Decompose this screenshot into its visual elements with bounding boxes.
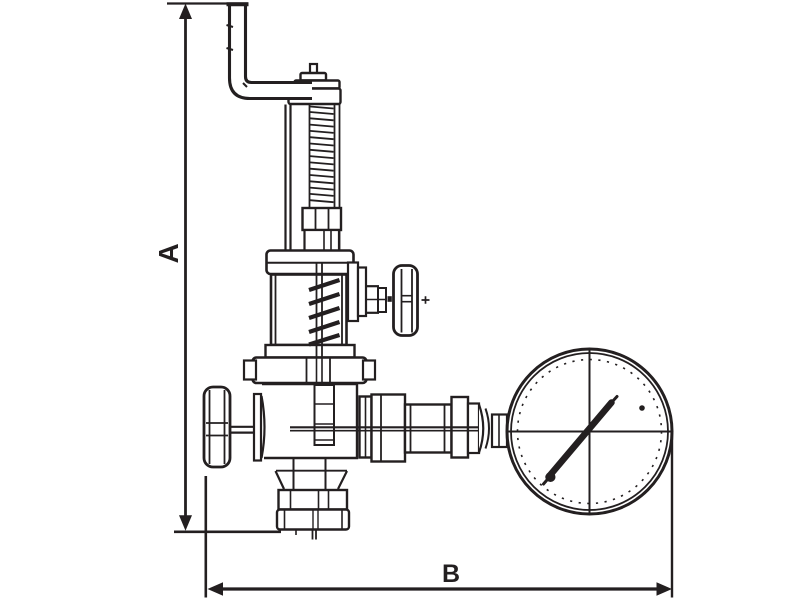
svg-text:A: A	[153, 243, 184, 263]
svg-text:B: B	[442, 560, 460, 588]
